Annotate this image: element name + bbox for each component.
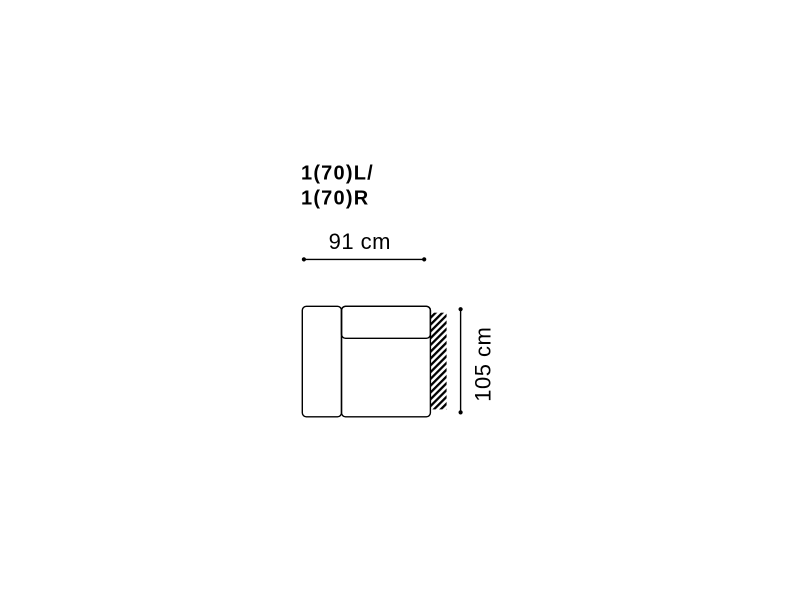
svg-text:91 cm: 91 cm <box>329 229 391 254</box>
svg-text:105 cm: 105 cm <box>471 327 496 402</box>
svg-text:1(70)L/: 1(70)L/ <box>301 163 374 185</box>
svg-text:1(70)R: 1(70)R <box>301 188 369 210</box>
